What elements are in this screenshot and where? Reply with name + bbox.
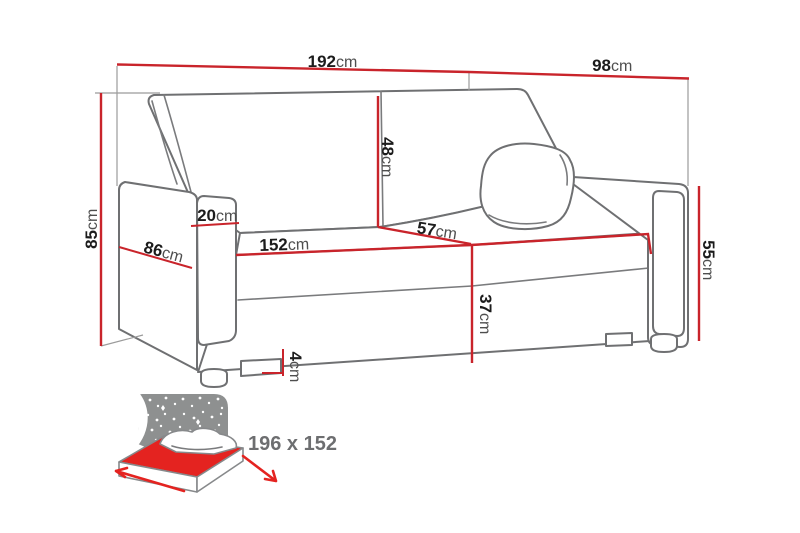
pillow	[480, 144, 573, 230]
dimension-value: 98	[592, 56, 611, 75]
sofa-bed-icon: 196 x 152	[116, 394, 337, 492]
sofa-dimensions-diagram: 192 cm 98 cm 85 cm 48 cm 57 cm	[0, 0, 800, 533]
dimension-unit: cm	[216, 208, 237, 225]
sofa-leg	[606, 333, 632, 346]
dimension-armrest-width: 20 cm	[191, 206, 239, 226]
dimension-value: 152	[259, 235, 288, 255]
dimension-unit: cm	[611, 58, 632, 75]
dimension-unit: cm	[378, 156, 395, 177]
dimension-unit: cm	[699, 259, 716, 280]
dimension-unit: cm	[288, 236, 310, 254]
left-armrest-side	[119, 182, 197, 370]
dimension-value: 37	[476, 294, 495, 313]
dimension-unit: cm	[84, 209, 101, 230]
dimension-value: 20	[197, 206, 216, 225]
dimension-value: 48	[378, 137, 397, 156]
dimension-armrest-height: 55 cm	[699, 186, 718, 341]
sofa-leg	[201, 369, 227, 387]
sofa-leg	[651, 334, 677, 352]
dimension-unit: cm	[286, 361, 303, 382]
dimension-value: 85	[82, 230, 101, 249]
dimension-unit: cm	[476, 313, 493, 334]
dimension-value: 192	[308, 52, 336, 71]
bed-length-arrow	[243, 456, 276, 481]
dimension-value: 55	[699, 240, 718, 259]
right-armrest-front-panel	[653, 191, 684, 336]
dimension-unit: cm	[336, 54, 357, 71]
sleeping-area-label: 196 x 152	[248, 433, 337, 455]
dimension-unit: cm	[434, 223, 458, 243]
